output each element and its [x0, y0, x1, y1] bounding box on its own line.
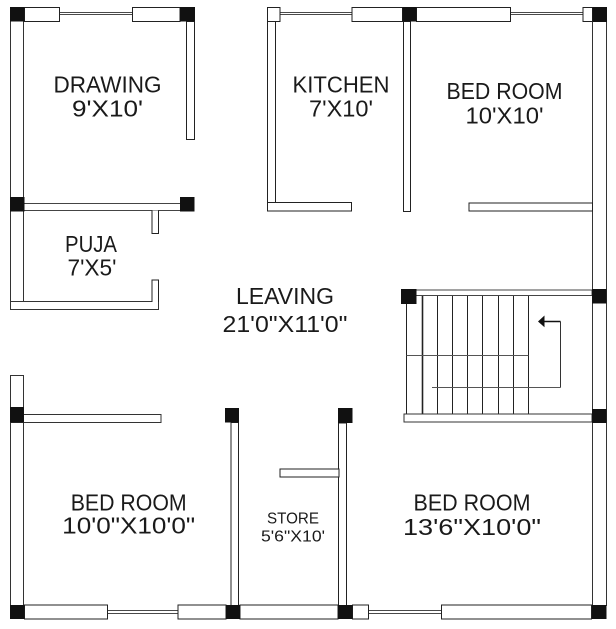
svg-text:7'X5': 7'X5' [68, 255, 117, 281]
svg-text:13'6"X10'0": 13'6"X10'0" [403, 514, 541, 540]
svg-text:PUJA: PUJA [65, 231, 117, 257]
svg-text:BED ROOM: BED ROOM [447, 78, 563, 104]
svg-text:7'X10': 7'X10' [309, 96, 373, 122]
svg-text:9'X10': 9'X10' [72, 96, 143, 122]
svg-text:KITCHEN: KITCHEN [293, 72, 390, 98]
svg-text:DRAWING: DRAWING [54, 72, 162, 98]
svg-text:STORE: STORE [267, 511, 319, 528]
svg-text:10'0"X10'0": 10'0"X10'0" [62, 513, 195, 539]
svg-text:BED ROOM: BED ROOM [414, 490, 531, 516]
svg-text:10'X10': 10'X10' [466, 103, 544, 129]
svg-text:5'6"X10': 5'6"X10' [261, 529, 325, 546]
svg-text:LEAVING: LEAVING [236, 283, 334, 309]
svg-text:21'0"X11'0": 21'0"X11'0" [223, 311, 348, 337]
